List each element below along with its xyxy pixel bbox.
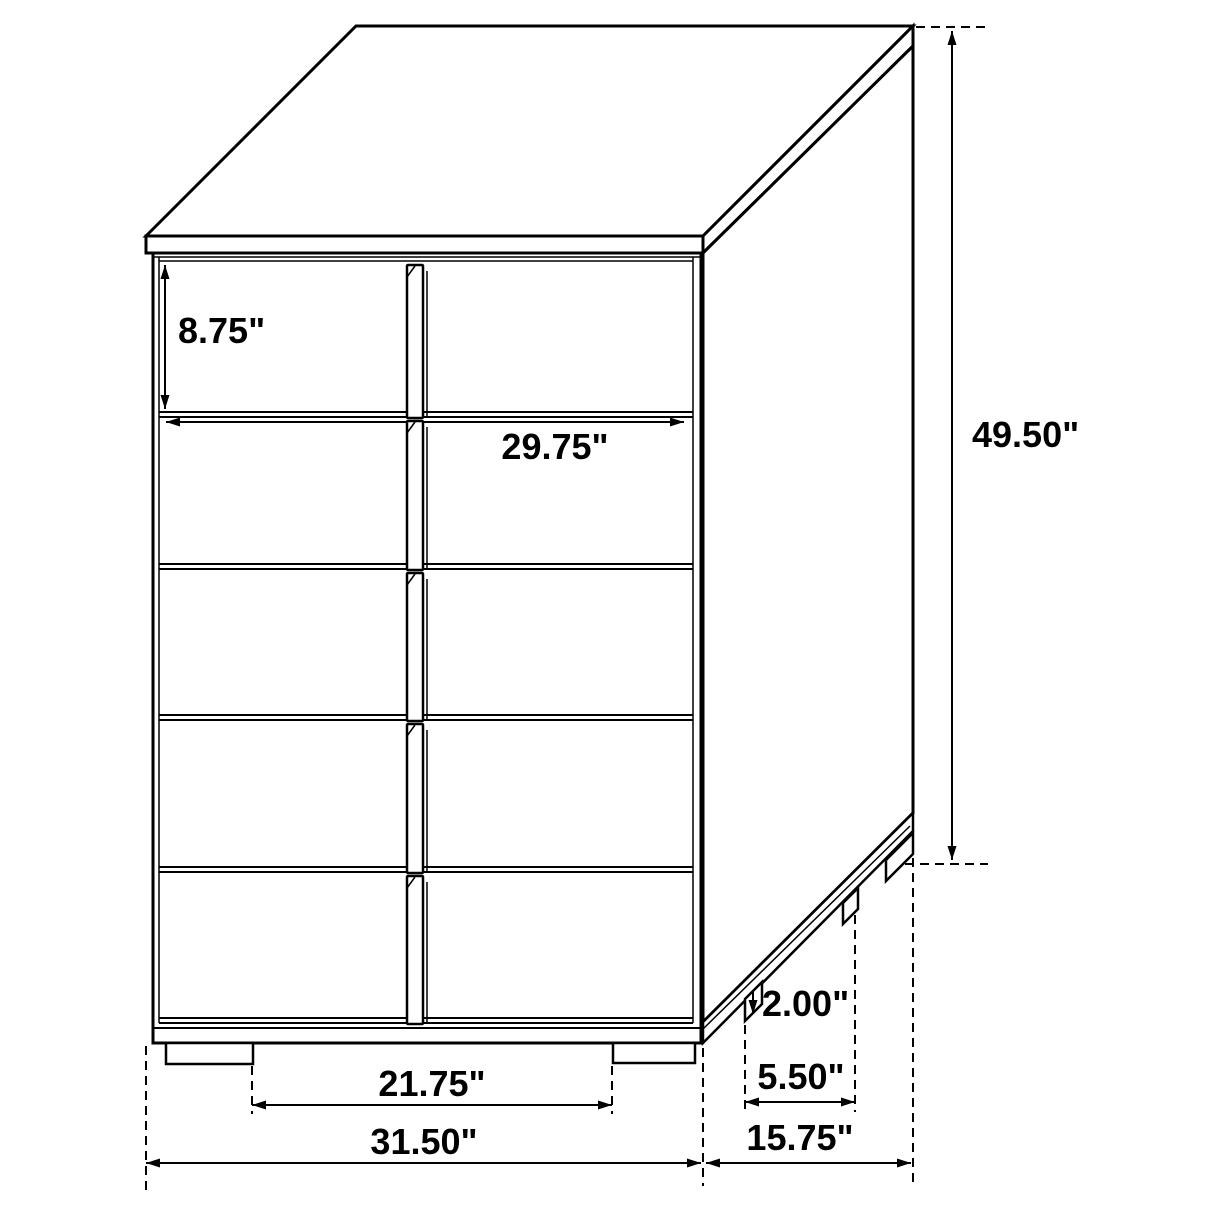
dim-label-overall-width: 31.50": [370, 1121, 477, 1162]
dimension-interior-width-label: 29.75": [501, 426, 608, 467]
chest-technical-drawing: 8.75" 29.75" 49.50" 2.00" 5.50" 21.75" 3…: [0, 0, 1214, 1214]
front-face: [153, 253, 701, 1064]
drawer-handles: [407, 265, 427, 1024]
dimension-foot-height: 2.00": [753, 983, 849, 1024]
front-feet: [166, 1043, 695, 1064]
dim-label-overall-depth: 15.75": [746, 1117, 853, 1158]
front-right-foot: [613, 1043, 695, 1063]
dim-label-overall-height: 49.50": [972, 414, 1079, 455]
top-front-edge: [146, 236, 703, 253]
front-left-foot: [166, 1043, 253, 1064]
drawer-handle: [407, 265, 427, 418]
dim-label-interior-width: 29.75": [501, 426, 608, 467]
dim-label-front-foot-spacing: 21.75": [378, 1063, 485, 1104]
dimension-front-foot-spacing: 21.75": [252, 1063, 612, 1114]
dimension-overall-height: 49.50": [905, 27, 1079, 864]
drawer-handle: [407, 724, 427, 873]
drawer-handle: [407, 876, 427, 1024]
dim-label-side-foot-spacing: 5.50": [757, 1056, 844, 1097]
drawer-handle: [407, 573, 427, 721]
drawer-handle: [407, 421, 427, 570]
dim-label-foot-height: 2.00": [762, 983, 849, 1024]
dimension-diagram: 8.75" 29.75" 49.50" 2.00" 5.50" 21.75" 3…: [0, 0, 1214, 1214]
dim-label-drawer-height: 8.75": [178, 310, 265, 351]
